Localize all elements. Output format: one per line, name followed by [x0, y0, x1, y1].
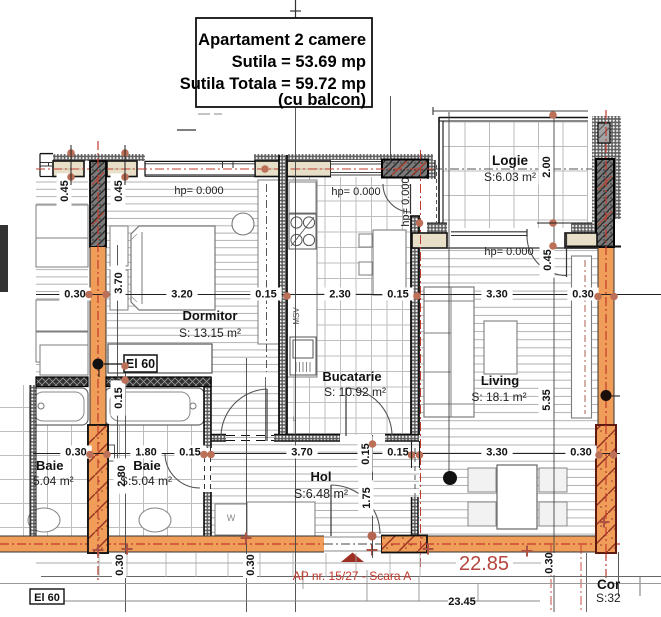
- svg-text:1.80: 1.80: [135, 447, 156, 459]
- svg-text:3.70: 3.70: [113, 272, 125, 293]
- svg-text:Dormitor: Dormitor: [183, 308, 238, 323]
- svg-text:0.15: 0.15: [179, 447, 200, 459]
- svg-text:Living: Living: [481, 373, 519, 388]
- svg-text:22.85: 22.85: [459, 553, 509, 575]
- svg-text:El 60: El 60: [126, 357, 155, 371]
- svg-text:0.15: 0.15: [387, 447, 408, 459]
- svg-text:0.30: 0.30: [64, 289, 85, 301]
- svg-text:S:6.48 m²: S:6.48 m²: [294, 487, 348, 501]
- svg-text:Apartament 2 camere: Apartament 2 camere: [198, 31, 366, 49]
- svg-text:AP nr. 15/27 - Scara A: AP nr. 15/27 - Scara A: [293, 569, 412, 583]
- svg-text:0.30: 0.30: [65, 447, 86, 459]
- svg-text:0.45: 0.45: [113, 180, 125, 201]
- svg-text:0.45: 0.45: [542, 249, 554, 270]
- svg-text:0.30: 0.30: [570, 447, 591, 459]
- svg-text:S: 18.1 m²: S: 18.1 m²: [471, 390, 526, 404]
- svg-text:El 60: El 60: [34, 592, 60, 604]
- svg-text:0.30: 0.30: [572, 289, 593, 301]
- svg-text:(cu balcon): (cu balcon): [278, 91, 366, 109]
- svg-text:S: 13.15 m²: S: 13.15 m²: [179, 326, 241, 340]
- svg-text:Logie: Logie: [492, 153, 528, 168]
- svg-text:0.15: 0.15: [113, 387, 125, 408]
- svg-text:hp= 0.000: hp= 0.000: [331, 186, 380, 198]
- svg-text:3.20: 3.20: [171, 289, 192, 301]
- svg-text:Baie: Baie: [36, 458, 63, 473]
- svg-text:S: 10.92 m²: S: 10.92 m²: [324, 385, 386, 399]
- svg-text:0.15: 0.15: [255, 289, 276, 301]
- svg-text:hp= 0.000: hp= 0.000: [400, 177, 412, 226]
- svg-text:hp= 0.000: hp= 0.000: [484, 246, 533, 258]
- svg-text:5.04 m²: 5.04 m²: [33, 474, 74, 488]
- svg-text:0.30: 0.30: [114, 554, 126, 575]
- svg-text:S:6.03 m²: S:6.03 m²: [484, 170, 536, 184]
- svg-text:0.15: 0.15: [387, 289, 408, 301]
- svg-text:Sutila = 53.69 mp: Sutila = 53.69 mp: [232, 53, 366, 71]
- svg-text:Bucatarie: Bucatarie: [322, 369, 381, 384]
- svg-text:0.45: 0.45: [59, 180, 71, 201]
- svg-text:W: W: [227, 513, 236, 523]
- svg-text:S:5.04 m²: S:5.04 m²: [120, 474, 172, 488]
- svg-text:0.30: 0.30: [544, 552, 556, 573]
- svg-text:23.45: 23.45: [448, 596, 476, 608]
- svg-text:Baie: Baie: [133, 458, 160, 473]
- svg-text:hp= 0.000: hp= 0.000: [174, 185, 223, 197]
- svg-text:2.30: 2.30: [329, 289, 350, 301]
- svg-text:Hol: Hol: [311, 469, 332, 484]
- svg-text:3.30: 3.30: [486, 447, 507, 459]
- svg-text:0.30: 0.30: [245, 554, 257, 575]
- svg-text:3.70: 3.70: [291, 447, 312, 459]
- svg-text:3.30: 3.30: [486, 289, 507, 301]
- svg-text:5.35: 5.35: [541, 389, 553, 410]
- svg-text:Cor: Cor: [597, 577, 621, 592]
- svg-text:MSV: MSV: [292, 307, 301, 325]
- svg-text:1.75: 1.75: [361, 487, 373, 508]
- svg-text:2.00: 2.00: [541, 156, 553, 177]
- svg-text:S:32: S:32: [596, 591, 621, 605]
